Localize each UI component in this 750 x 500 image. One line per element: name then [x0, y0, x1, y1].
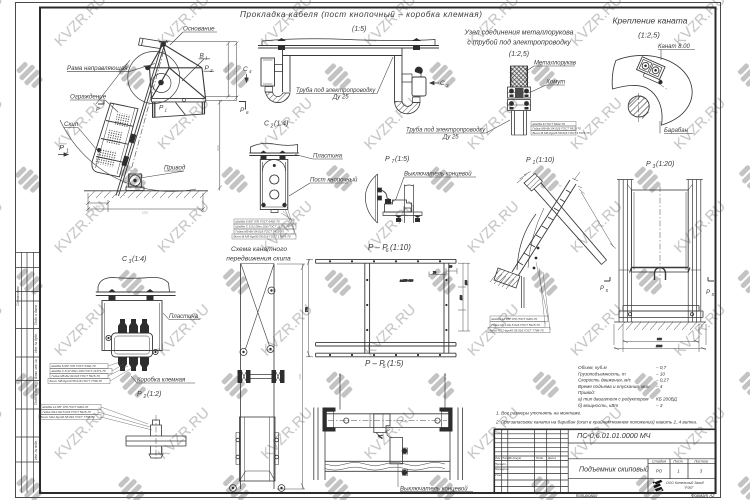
svg-text:Привод:: Привод: [578, 390, 596, 395]
svg-text:Согласовано: Согласовано [16, 286, 20, 306]
svg-text:Болт М12-6gх40.58.016 ГОСТ 779: Болт М12-6gх40.58.016 ГОСТ 7798-70 [41, 415, 95, 419]
svg-text:– 0,7: – 0,7 [655, 365, 667, 370]
svg-text:Гайка М5-6Н.04.016 ГОСТ 5915-7: Гайка М5-6Н.04.016 ГОСТ 5915-70 [236, 230, 285, 234]
svg-text:ООО Котельный Завод: ООО Котельный Завод [666, 481, 704, 485]
svg-text:Р: Р [96, 107, 100, 113]
svg-text:с трубой под электропроводку: с трубой под электропроводку [467, 39, 571, 47]
svg-text:Основание: Основание [183, 26, 215, 33]
svg-text:Хомут: Хомут [545, 80, 565, 86]
svg-text:Подп.: Подп. [536, 456, 544, 460]
svg-text:(1:2): (1:2) [147, 391, 161, 398]
svg-text:Подп. и дата: Подп. и дата [34, 305, 38, 325]
svg-text:Болт М12-6gх45.58.016 ГОСТ 779: Болт М12-6gх45.58.016 ГОСТ 7798-70 [490, 328, 544, 332]
svg-text:960: 960 [657, 337, 662, 341]
svg-text:Винт В.М5-6gх50.58.016 ГОСТ 17: Винт В.М5-6gх50.58.016 ГОСТ 17475-70 [234, 235, 291, 239]
svg-text:580: 580 [96, 205, 101, 209]
svg-text:РО: РО [656, 469, 663, 474]
svg-text:б) мощность, кВт: б) мощность, кВт [578, 403, 618, 408]
svg-text:Рама направляющая: Рама направляющая [67, 65, 128, 72]
svg-text:2: 2 [209, 68, 213, 73]
svg-text:Привод: Привод [164, 165, 186, 172]
svg-text:Формат А2: Формат А2 [691, 493, 715, 498]
svg-text:770: 770 [305, 307, 309, 312]
svg-text:Изм: Изм [495, 456, 501, 460]
svg-text:Инв. № подл.: Инв. № подл. [34, 440, 38, 460]
svg-text:Шайба 5.65Г 076 ГОСТ 6402-70: Шайба 5.65Г 076 ГОСТ 6402-70 [236, 220, 280, 224]
svg-text:Грузоподъемность, т: Грузоподъемность, т [578, 371, 626, 376]
svg-text:– 3: – 3 [655, 403, 663, 408]
svg-text:Труба под электропроводку: Труба под электропроводку [406, 128, 486, 134]
svg-text:Р: Р [646, 161, 651, 168]
svg-text:2: 2 [143, 394, 147, 400]
svg-text:Р: Р [600, 286, 604, 292]
svg-text:В: В [200, 53, 205, 60]
svg-text:Крепление каната: Крепление каната [612, 16, 687, 26]
svg-text:Скип: Скип [64, 121, 79, 128]
svg-text:Проверил: Проверил [495, 467, 509, 471]
svg-text:Ограждение: Ограждение [70, 94, 107, 101]
svg-text:Гайка М12-6Н.5.016 ГОСТ 5915-7: Гайка М12-6Н.5.016 ГОСТ 5915-70 [43, 410, 92, 414]
svg-text:(1:2,5): (1:2,5) [509, 51, 529, 58]
svg-text:Коробка клемная: Коробка клемная [137, 378, 186, 384]
svg-text:Гайка М12-6Н.5.016 ГОСТ 5915-7: Гайка М12-6Н.5.016 ГОСТ 5915-70 [492, 323, 541, 327]
svg-text:Инв. № дубл.: Инв. № дубл. [34, 333, 38, 353]
svg-text:Узел соединения металлорукова: Узел соединения металлорукова [464, 29, 574, 37]
svg-text:Р: Р [205, 65, 210, 72]
svg-text:2: 2 [270, 124, 274, 130]
svg-text:Пост кнопочный: Пост кнопочный [310, 177, 358, 184]
svg-text:Схема канатного: Схема канатного [231, 246, 287, 253]
svg-text:(1:2,5): (1:2,5) [638, 31, 660, 40]
svg-text:Пластина: Пластина [313, 154, 343, 160]
svg-text:770: 770 [233, 70, 237, 75]
svg-text:90: 90 [449, 265, 453, 269]
svg-text:С: С [440, 80, 445, 87]
svg-text:3600: 3600 [216, 144, 220, 151]
svg-text:№ докум.: № докум. [509, 456, 522, 460]
svg-text:Подп. и дата: Подп. и дата [34, 385, 38, 405]
svg-text:Ду 25: Ду 25 [332, 95, 349, 101]
svg-text:Объем, куб.м: Объем, куб.м [578, 365, 607, 370]
svg-text:(1:4): (1:4) [274, 121, 288, 128]
svg-text:Копировал: Копировал [576, 493, 598, 498]
svg-text:Шайба 6 ГОСТ 6402-70: Шайба 6 ГОСТ 6402-70 [533, 122, 566, 126]
svg-text:Труба под электропроводку: Труба под электропроводку [296, 88, 376, 94]
svg-text:Болт М8-6gх10.58.016 ГОСТ 7798: Болт М8-6gх10.58.016 ГОСТ 7798-70 [50, 379, 103, 383]
svg-text:(1:5): (1:5) [387, 359, 404, 368]
svg-text:кв250-600: кв250-600 [400, 279, 413, 283]
svg-text:Утв.: Утв. [495, 473, 502, 477]
svg-text:Подъемник скиповый: Подъемник скиповый [579, 466, 649, 474]
svg-text:Дата: Дата [547, 456, 556, 460]
svg-text:"РЭП": "РЭП" [684, 486, 694, 490]
svg-text:Винт В.М6-6gх25.58.016 ГОСТ 17: Винт В.М6-6gх25.58.016 ГОСТ 17475-70 [533, 131, 590, 135]
svg-text:Пластина: Пластина [169, 314, 199, 320]
svg-text:Барабан: Барабан [664, 128, 689, 134]
svg-text:Р: Р [526, 157, 531, 164]
svg-text:Выключатель концевой: Выключатель концевой [404, 171, 472, 178]
svg-text:Р: Р [240, 107, 245, 114]
svg-text:(1:5): (1:5) [352, 26, 366, 33]
svg-text:Шайба 12.65Г 076 ГОСТ 6402-70: Шайба 12.65Г 076 ГОСТ 6402-70 [492, 317, 538, 321]
svg-text:– 10: – 10 [655, 371, 665, 376]
svg-text:1510: 1510 [142, 211, 149, 215]
svg-text:Металлорукав: Металлорукав [534, 61, 576, 67]
svg-text:Шайба С.8.37.08кп.016 ГОСТ 113: Шайба С.8.37.08кп.016 ГОСТ 11371-78 [52, 369, 106, 373]
svg-text:Канат 8.00: Канат 8.00 [658, 44, 691, 50]
svg-text:(1:10): (1:10) [536, 157, 554, 164]
svg-text:Время подъема и опускания, мин: Время подъема и опускания, мин [578, 384, 650, 389]
svg-text:Взам. инв. №: Взам. инв. № [34, 359, 38, 379]
svg-text:7100: 7100 [298, 373, 302, 380]
svg-text:Шайба 8.65Г 076 ГОСТ 6402-70: Шайба 8.65Г 076 ГОСТ 6402-70 [52, 364, 96, 368]
svg-text:Гайка М6-6Н.04.016 ГОСТ 5915-7: Гайка М6-6Н.04.016 ГОСТ 5915-70 [533, 127, 582, 131]
svg-text:Гайка М8-6Н.04.016 ГОСТ 5915-7: Гайка М8-6Н.04.016 ГОСТ 5915-70 [52, 374, 101, 378]
svg-text:Р: Р [137, 391, 142, 398]
svg-text:Р: Р [385, 156, 390, 163]
svg-text:Р: Р [59, 143, 64, 152]
svg-text:2. При запасовки каната на бар: 2. При запасовки каната на барабан (скип… [495, 419, 697, 425]
svg-text:а) тип двигателя с редуктором: а) тип двигателя с редуктором [578, 397, 649, 402]
svg-text:С: С [243, 66, 248, 73]
svg-text:(1:5): (1:5) [395, 156, 409, 163]
svg-text:1080: 1080 [656, 344, 663, 348]
svg-text:Лист: Лист [672, 459, 683, 463]
svg-text:(1:4): (1:4) [132, 256, 146, 263]
svg-text:Прокладка кабеля (пост кнопочн: Прокладка кабеля (пост кнопочный – короб… [240, 10, 482, 19]
svg-text:(1:20): (1:20) [656, 161, 674, 168]
svg-text:995: 995 [224, 67, 228, 72]
svg-text:Р: Р [706, 290, 710, 296]
svg-text:Шайба С.5.01.08кп.016 ГОСТ 113: Шайба С.5.01.08кп.016 ГОСТ 11371-78 [236, 225, 290, 229]
svg-text:передвижения скипа: передвижения скипа [226, 255, 291, 263]
svg-text:190: 190 [459, 295, 463, 300]
svg-text:1. Все размеры уточнять на мон: 1. Все размеры уточнять на монтаже. [496, 411, 582, 416]
svg-text:ПС-0,6.01.01.0000 МЧ: ПС-0,6.01.01.0000 МЧ [577, 431, 651, 440]
svg-text:КБ 200ВД: КБ 200ВД [656, 397, 678, 402]
svg-text:Шайба 12.65Г 076 ГОСТ 6402-70: Шайба 12.65Г 076 ГОСТ 6402-70 [43, 405, 89, 409]
svg-text:Р: Р [159, 105, 164, 112]
svg-text:Стадия: Стадия [652, 460, 666, 464]
svg-text:(1:10): (1:10) [390, 243, 411, 252]
svg-text:280: 280 [464, 280, 468, 286]
svg-text:Выключатель концевой: Выключатель концевой [400, 486, 468, 493]
svg-text:– 4: – 4 [655, 384, 663, 389]
svg-text:Скорость движения, м/с: Скорость движения, м/с [578, 378, 632, 383]
svg-text:Ду 25: Ду 25 [442, 135, 459, 141]
svg-text:Проект.: Проект. [495, 462, 507, 466]
svg-text:Листов: Листов [693, 459, 708, 463]
svg-text:70: 70 [433, 271, 437, 275]
svg-text:– 0,27: – 0,27 [655, 378, 669, 383]
